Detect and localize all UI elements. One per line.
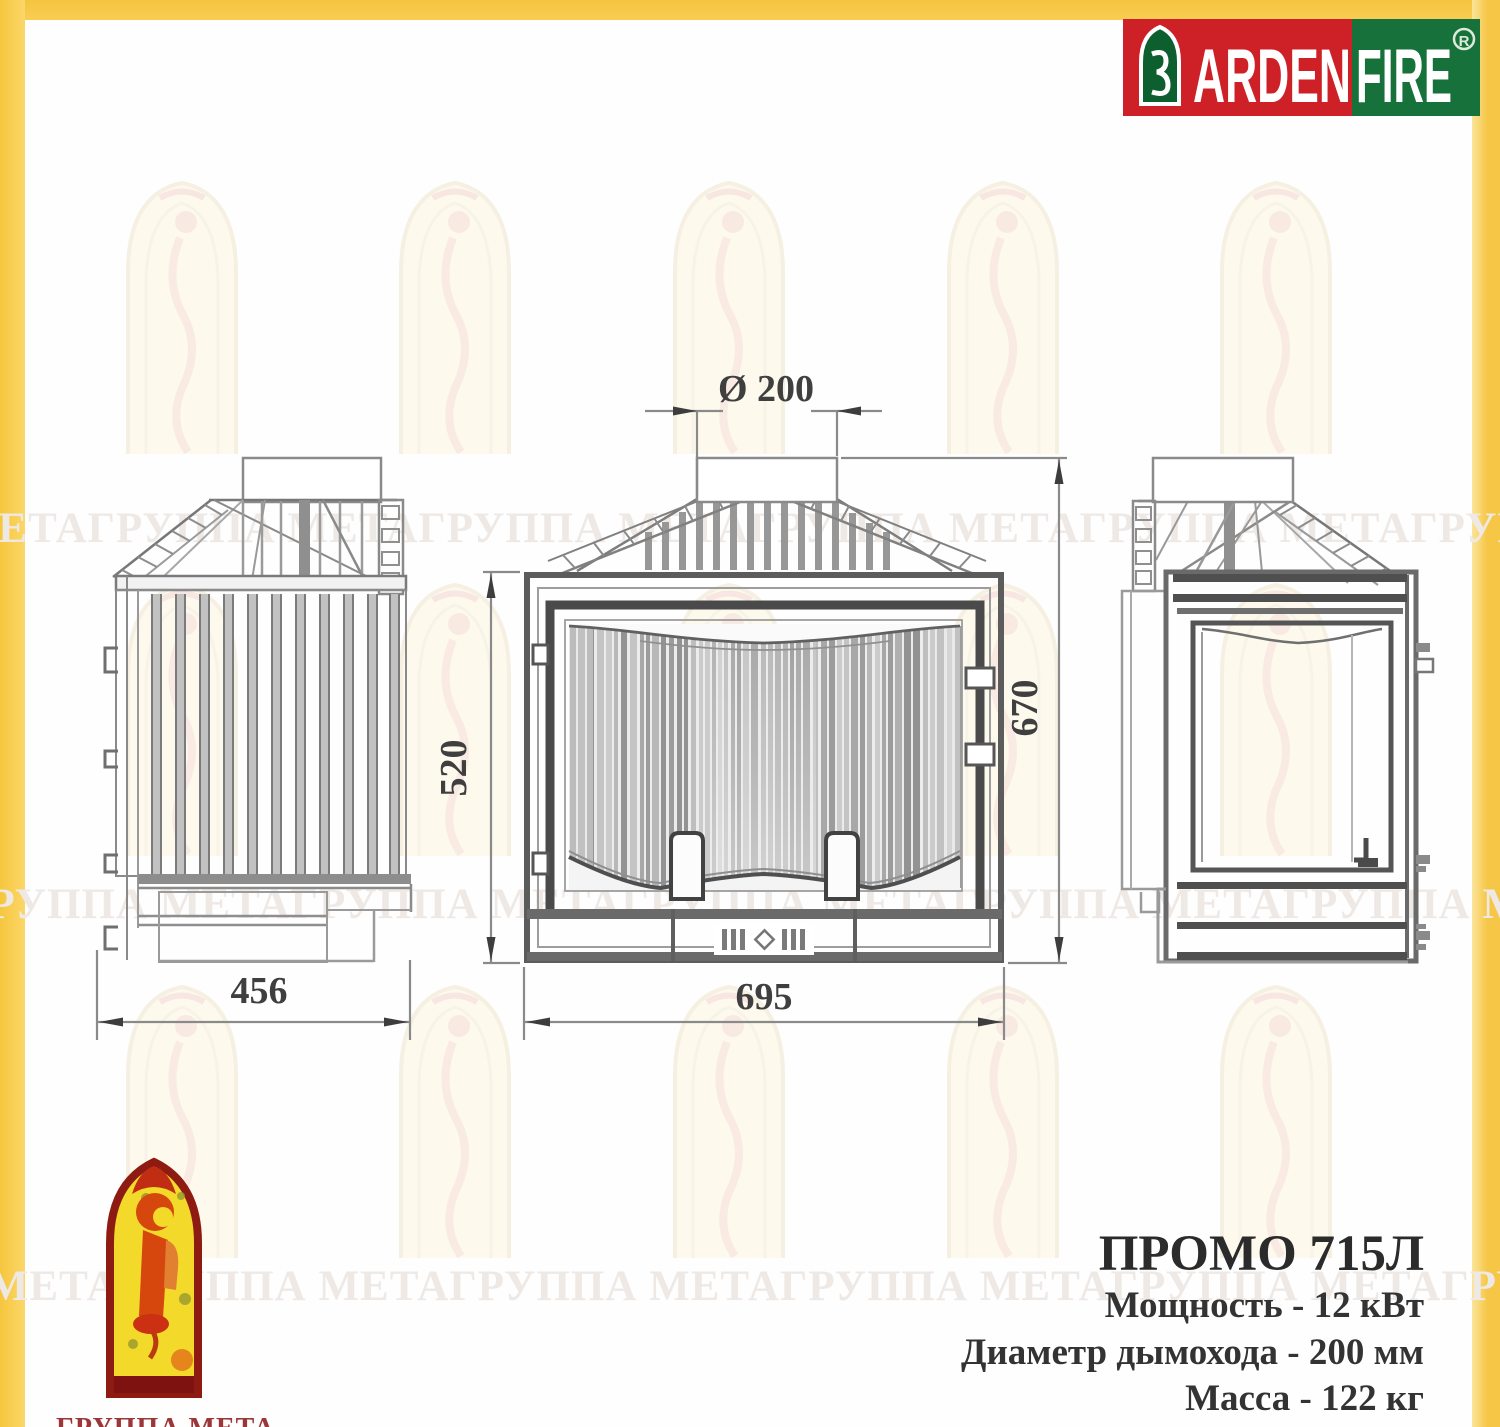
svg-text:670: 670 (1004, 680, 1046, 737)
svg-text:Ø 200: Ø 200 (718, 368, 814, 410)
svg-text:Диаметр дымохода - 200 мм: Диаметр дымохода - 200 мм (961, 1332, 1424, 1373)
svg-text:ARDEN: ARDEN (1193, 34, 1351, 119)
svg-text:Масса - 122 кг: Масса - 122 кг (1185, 1378, 1424, 1419)
svg-text:520: 520 (433, 740, 475, 797)
svg-text:R: R (1459, 33, 1470, 50)
svg-text:456: 456 (231, 970, 288, 1012)
svg-text:ГРУППА МЕТА: ГРУППА МЕТА (56, 1413, 275, 1427)
svg-text:ПРОМО 715Л: ПРОМО 715Л (1099, 1226, 1424, 1282)
svg-text:695: 695 (736, 976, 793, 1018)
svg-text:FIRE: FIRE (1356, 34, 1452, 119)
svg-text:Мощность - 12 кВт: Мощность - 12 кВт (1105, 1285, 1424, 1326)
